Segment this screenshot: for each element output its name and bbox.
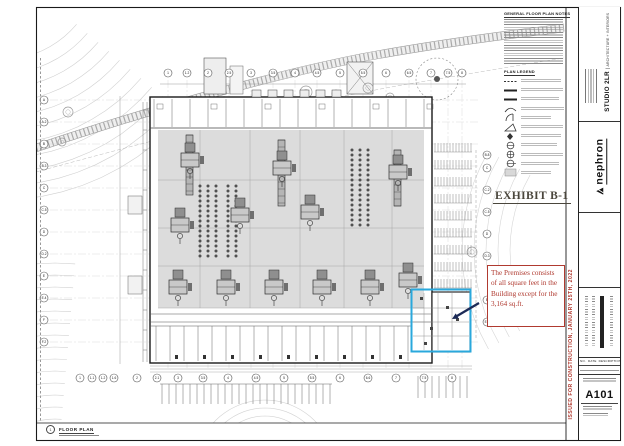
svg-text:2.5: 2.5 xyxy=(227,71,232,75)
issued-note: ISSUED FOR CONSTRUCTION, JANUARY 25TH, 2… xyxy=(565,246,577,442)
svg-text:D.2: D.2 xyxy=(42,252,47,256)
svg-text:C.2: C.2 xyxy=(485,188,490,192)
firm-identity: STUDIO 2LRARCHITECTURE + INTERIORS xyxy=(599,13,617,112)
svg-text:3: 3 xyxy=(177,376,179,380)
legend-item-text xyxy=(521,143,557,148)
project-info-section xyxy=(579,288,620,358)
sheet-number: A101 xyxy=(579,389,620,401)
svg-text:1: 1 xyxy=(167,71,169,75)
legend-item-text xyxy=(521,134,561,139)
legend-item-text xyxy=(521,153,563,158)
drawing-scale-note xyxy=(59,435,99,437)
legend-item-text xyxy=(521,116,551,121)
svg-text:B: B xyxy=(43,142,45,146)
svg-text:4.5: 4.5 xyxy=(254,376,259,380)
drawing-title: FLOOR PLAN xyxy=(59,427,94,434)
svg-text:B.3: B.3 xyxy=(42,164,47,168)
title-block: STUDIO 2LRARCHITECTURE + INTERIORS nephr… xyxy=(578,7,621,440)
svg-text:4.5: 4.5 xyxy=(315,71,320,75)
sheet-title-text xyxy=(583,406,612,410)
legend-item-text xyxy=(521,125,563,130)
svg-text:3: 3 xyxy=(250,71,252,75)
legend-item-text xyxy=(521,97,559,102)
svg-text:4: 4 xyxy=(294,71,296,75)
legend-item-text xyxy=(521,162,559,167)
divider xyxy=(581,403,618,404)
firm-address xyxy=(585,69,597,103)
svg-text:D.3: D.3 xyxy=(485,254,490,258)
svg-text:6.5: 6.5 xyxy=(407,71,412,75)
svg-text:F: F xyxy=(43,318,45,322)
svg-text:3.5: 3.5 xyxy=(271,71,276,75)
legend-item-text xyxy=(521,88,563,93)
svg-text:5.5: 5.5 xyxy=(361,71,366,75)
notes-title: GENERAL FLOOR PLAN NOTES xyxy=(504,11,570,18)
project-info-text xyxy=(592,296,595,348)
svg-text:7: 7 xyxy=(430,71,432,75)
sheet-number-section: A101 xyxy=(579,378,620,442)
svg-text:1.2: 1.2 xyxy=(101,376,106,380)
revision-table: NO. DATE DESCRIPTION xyxy=(579,358,620,375)
sheet-footer-text xyxy=(583,413,608,416)
svg-text:4: 4 xyxy=(227,376,229,380)
sheet-meta-text xyxy=(583,378,616,382)
svg-text:C.5: C.5 xyxy=(485,210,490,214)
svg-text:1.2: 1.2 xyxy=(185,71,190,75)
project-info-text xyxy=(585,296,588,348)
shaded-area-icon xyxy=(504,164,519,182)
svg-text:7.5: 7.5 xyxy=(446,71,451,75)
client-logo: nephron xyxy=(593,138,607,195)
svg-text:1: 1 xyxy=(79,376,81,380)
plan-legend xyxy=(504,77,564,178)
seal-section xyxy=(579,213,620,288)
client-name: nephron xyxy=(593,138,607,184)
svg-text:1.6: 1.6 xyxy=(112,376,117,380)
svg-text:B.8: B.8 xyxy=(485,153,490,157)
svg-text:E.4: E.4 xyxy=(42,296,47,300)
project-info-text xyxy=(610,296,613,348)
revision-header: NO. DATE DESCRIPTION xyxy=(579,358,620,366)
legend-item-text xyxy=(521,171,551,176)
svg-text:5.5: 5.5 xyxy=(310,376,315,380)
detail-number-bubble: 1 xyxy=(46,425,55,434)
svg-text:6.6: 6.6 xyxy=(366,376,371,380)
svg-text:2: 2 xyxy=(136,376,138,380)
svg-text:F.2: F.2 xyxy=(42,340,46,344)
svg-text:C.5: C.5 xyxy=(42,208,47,212)
svg-text:5: 5 xyxy=(339,71,341,75)
svg-text:8: 8 xyxy=(451,376,453,380)
premises-note-text: The Premises consists of all square feet… xyxy=(491,268,561,310)
svg-text:A.2: A.2 xyxy=(42,120,47,124)
project-title-text xyxy=(600,296,604,348)
client-logo-section: nephron xyxy=(579,122,620,213)
firm-section: STUDIO 2LRARCHITECTURE + INTERIORS xyxy=(579,7,620,122)
premises-note-box: The Premises consists of all square feet… xyxy=(487,265,565,327)
firm-tagline: ARCHITECTURE + INTERIORS xyxy=(606,13,610,71)
legend-item-text xyxy=(521,79,561,84)
svg-text:3.5: 3.5 xyxy=(201,376,206,380)
svg-text:2.1: 2.1 xyxy=(155,376,160,380)
detail-number: 1 xyxy=(50,428,52,432)
floor-plan-drawing: 11.222.533.544.555.566.577.5811.11.21.62… xyxy=(0,0,624,446)
svg-text:7: 7 xyxy=(395,376,397,380)
nephron-logo-icon xyxy=(595,187,604,196)
svg-text:1.1: 1.1 xyxy=(90,376,95,380)
svg-text:6: 6 xyxy=(339,376,341,380)
issued-note-text: ISSUED FOR CONSTRUCTION, JANUARY 25TH, 2… xyxy=(568,269,574,420)
svg-text:6: 6 xyxy=(385,71,387,75)
exhibit-label: EXHIBIT B-1 xyxy=(493,190,571,204)
svg-text:E: E xyxy=(43,274,45,278)
legend-item xyxy=(504,169,564,178)
svg-text:5: 5 xyxy=(283,376,285,380)
svg-text:8: 8 xyxy=(461,71,463,75)
firm-name: STUDIO 2LR xyxy=(604,71,611,112)
svg-text:2: 2 xyxy=(207,71,209,75)
revision-row xyxy=(580,366,619,371)
exhibit-sheet: 11.222.533.544.555.566.577.5811.11.21.62… xyxy=(0,0,624,446)
notes-paragraph xyxy=(504,19,563,65)
sheet-edge-note xyxy=(40,58,41,422)
svg-text:7.5: 7.5 xyxy=(422,376,427,380)
legend-item-text xyxy=(521,107,564,112)
